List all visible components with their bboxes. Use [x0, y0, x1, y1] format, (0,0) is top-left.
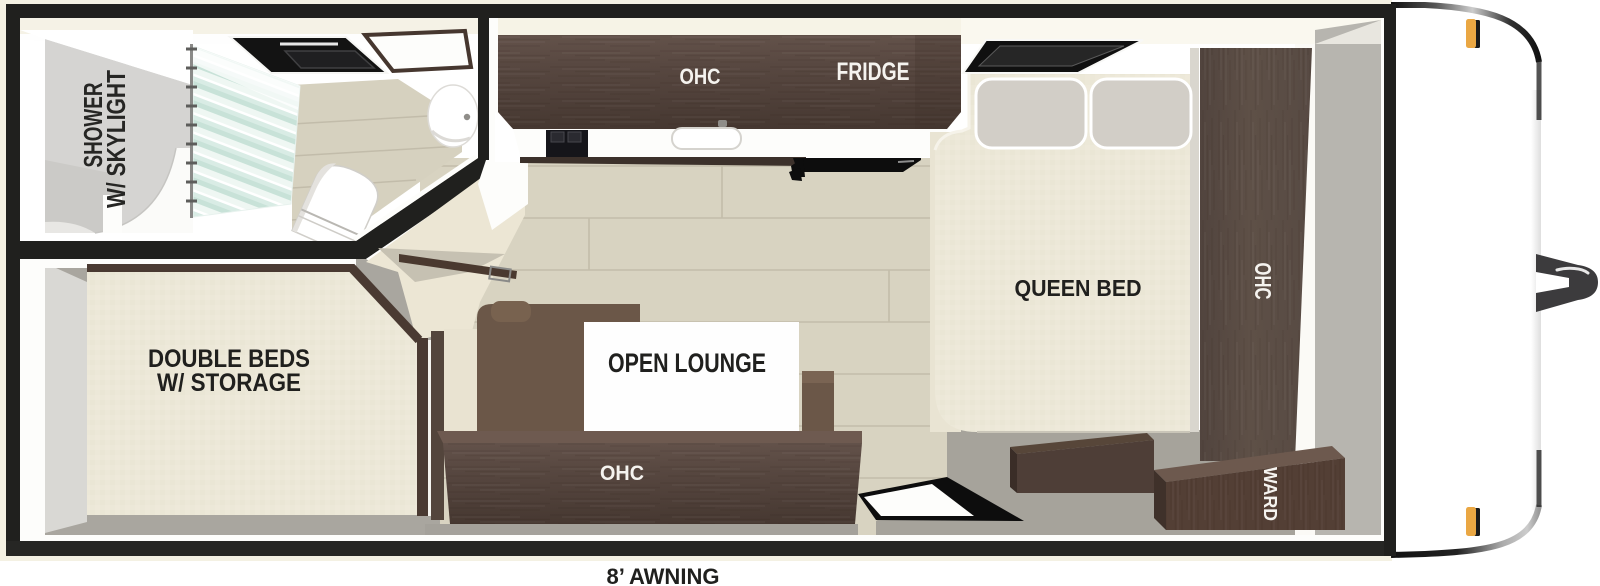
- svg-text:OHC: OHC: [1250, 263, 1276, 300]
- svg-text:WARD: WARD: [1260, 467, 1280, 521]
- svg-text:8’ AWNING: 8’ AWNING: [607, 564, 720, 586]
- svg-text:FRIDGE: FRIDGE: [837, 58, 910, 86]
- svg-text:OHC: OHC: [680, 64, 721, 89]
- svg-text:QUEEN BED: QUEEN BED: [1015, 275, 1142, 301]
- svg-text:OHC: OHC: [600, 462, 644, 485]
- svg-text:OPEN LOUNGE: OPEN LOUNGE: [608, 348, 766, 378]
- svg-text:W/ SKYLIGHT: W/ SKYLIGHT: [101, 70, 131, 208]
- svg-text:W/ STORAGE: W/ STORAGE: [157, 369, 301, 397]
